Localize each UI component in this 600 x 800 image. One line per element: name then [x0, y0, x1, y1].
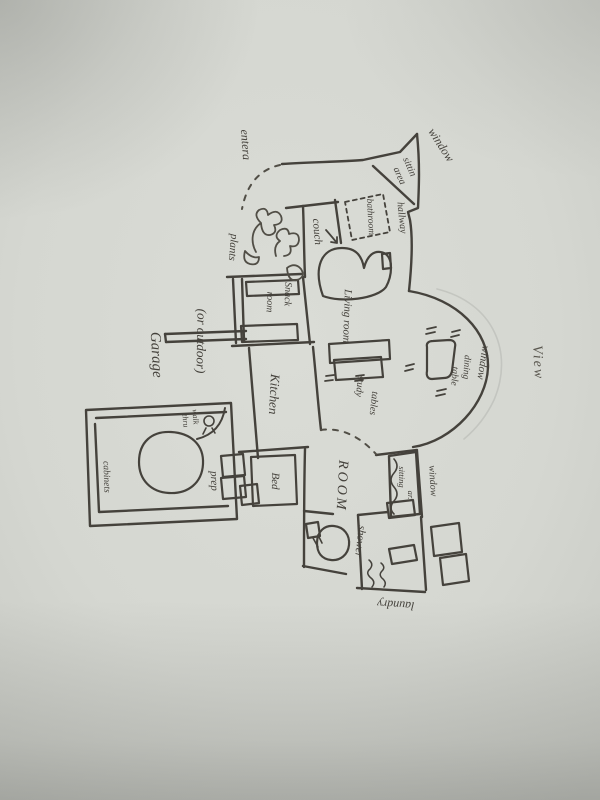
- label-garage: Garage: [147, 331, 165, 378]
- wall-room-left: [304, 449, 305, 567]
- label-sitting-small-2: ar.: [406, 491, 416, 500]
- label-cabinets: cabinets: [100, 461, 111, 493]
- label-room: ROOM: [333, 459, 351, 513]
- label-dining-1: dining: [460, 355, 472, 380]
- label-bed: Bed: [269, 472, 281, 490]
- label-prep: prep: [208, 470, 221, 492]
- label-snack-2: room: [264, 292, 276, 313]
- paper-shadow-topright: [340, 0, 600, 180]
- label-window-right: window: [426, 465, 439, 497]
- label-view: View: [529, 345, 546, 381]
- label-walkthru-2: thru: [180, 414, 190, 428]
- paper-shadow-topleft: [0, 0, 260, 220]
- wall-divider-cap: [165, 334, 166, 342]
- label-kitchen: Kitchen: [266, 373, 283, 415]
- label-laundry: laundry: [376, 597, 415, 614]
- label-walkthru-1: walk: [190, 409, 200, 425]
- label-couch: couch: [310, 218, 324, 246]
- label-dining-2: table: [448, 366, 459, 386]
- label-entrance: entera: [238, 129, 254, 161]
- label-study-1: study: [353, 375, 366, 398]
- paper-shadow-bottom: [0, 600, 600, 800]
- label-bathroom: bathroom: [364, 198, 376, 235]
- floorplan-photo: entera window sittin area hallway bathro…: [0, 0, 600, 800]
- label-garage-note: (or outdoor): [193, 309, 209, 374]
- label-plants: plants: [226, 232, 240, 261]
- label-living-room: Living room: [340, 288, 354, 343]
- label-snack-1: Snack: [282, 282, 294, 307]
- label-sitting-small-1: sitting: [397, 466, 407, 487]
